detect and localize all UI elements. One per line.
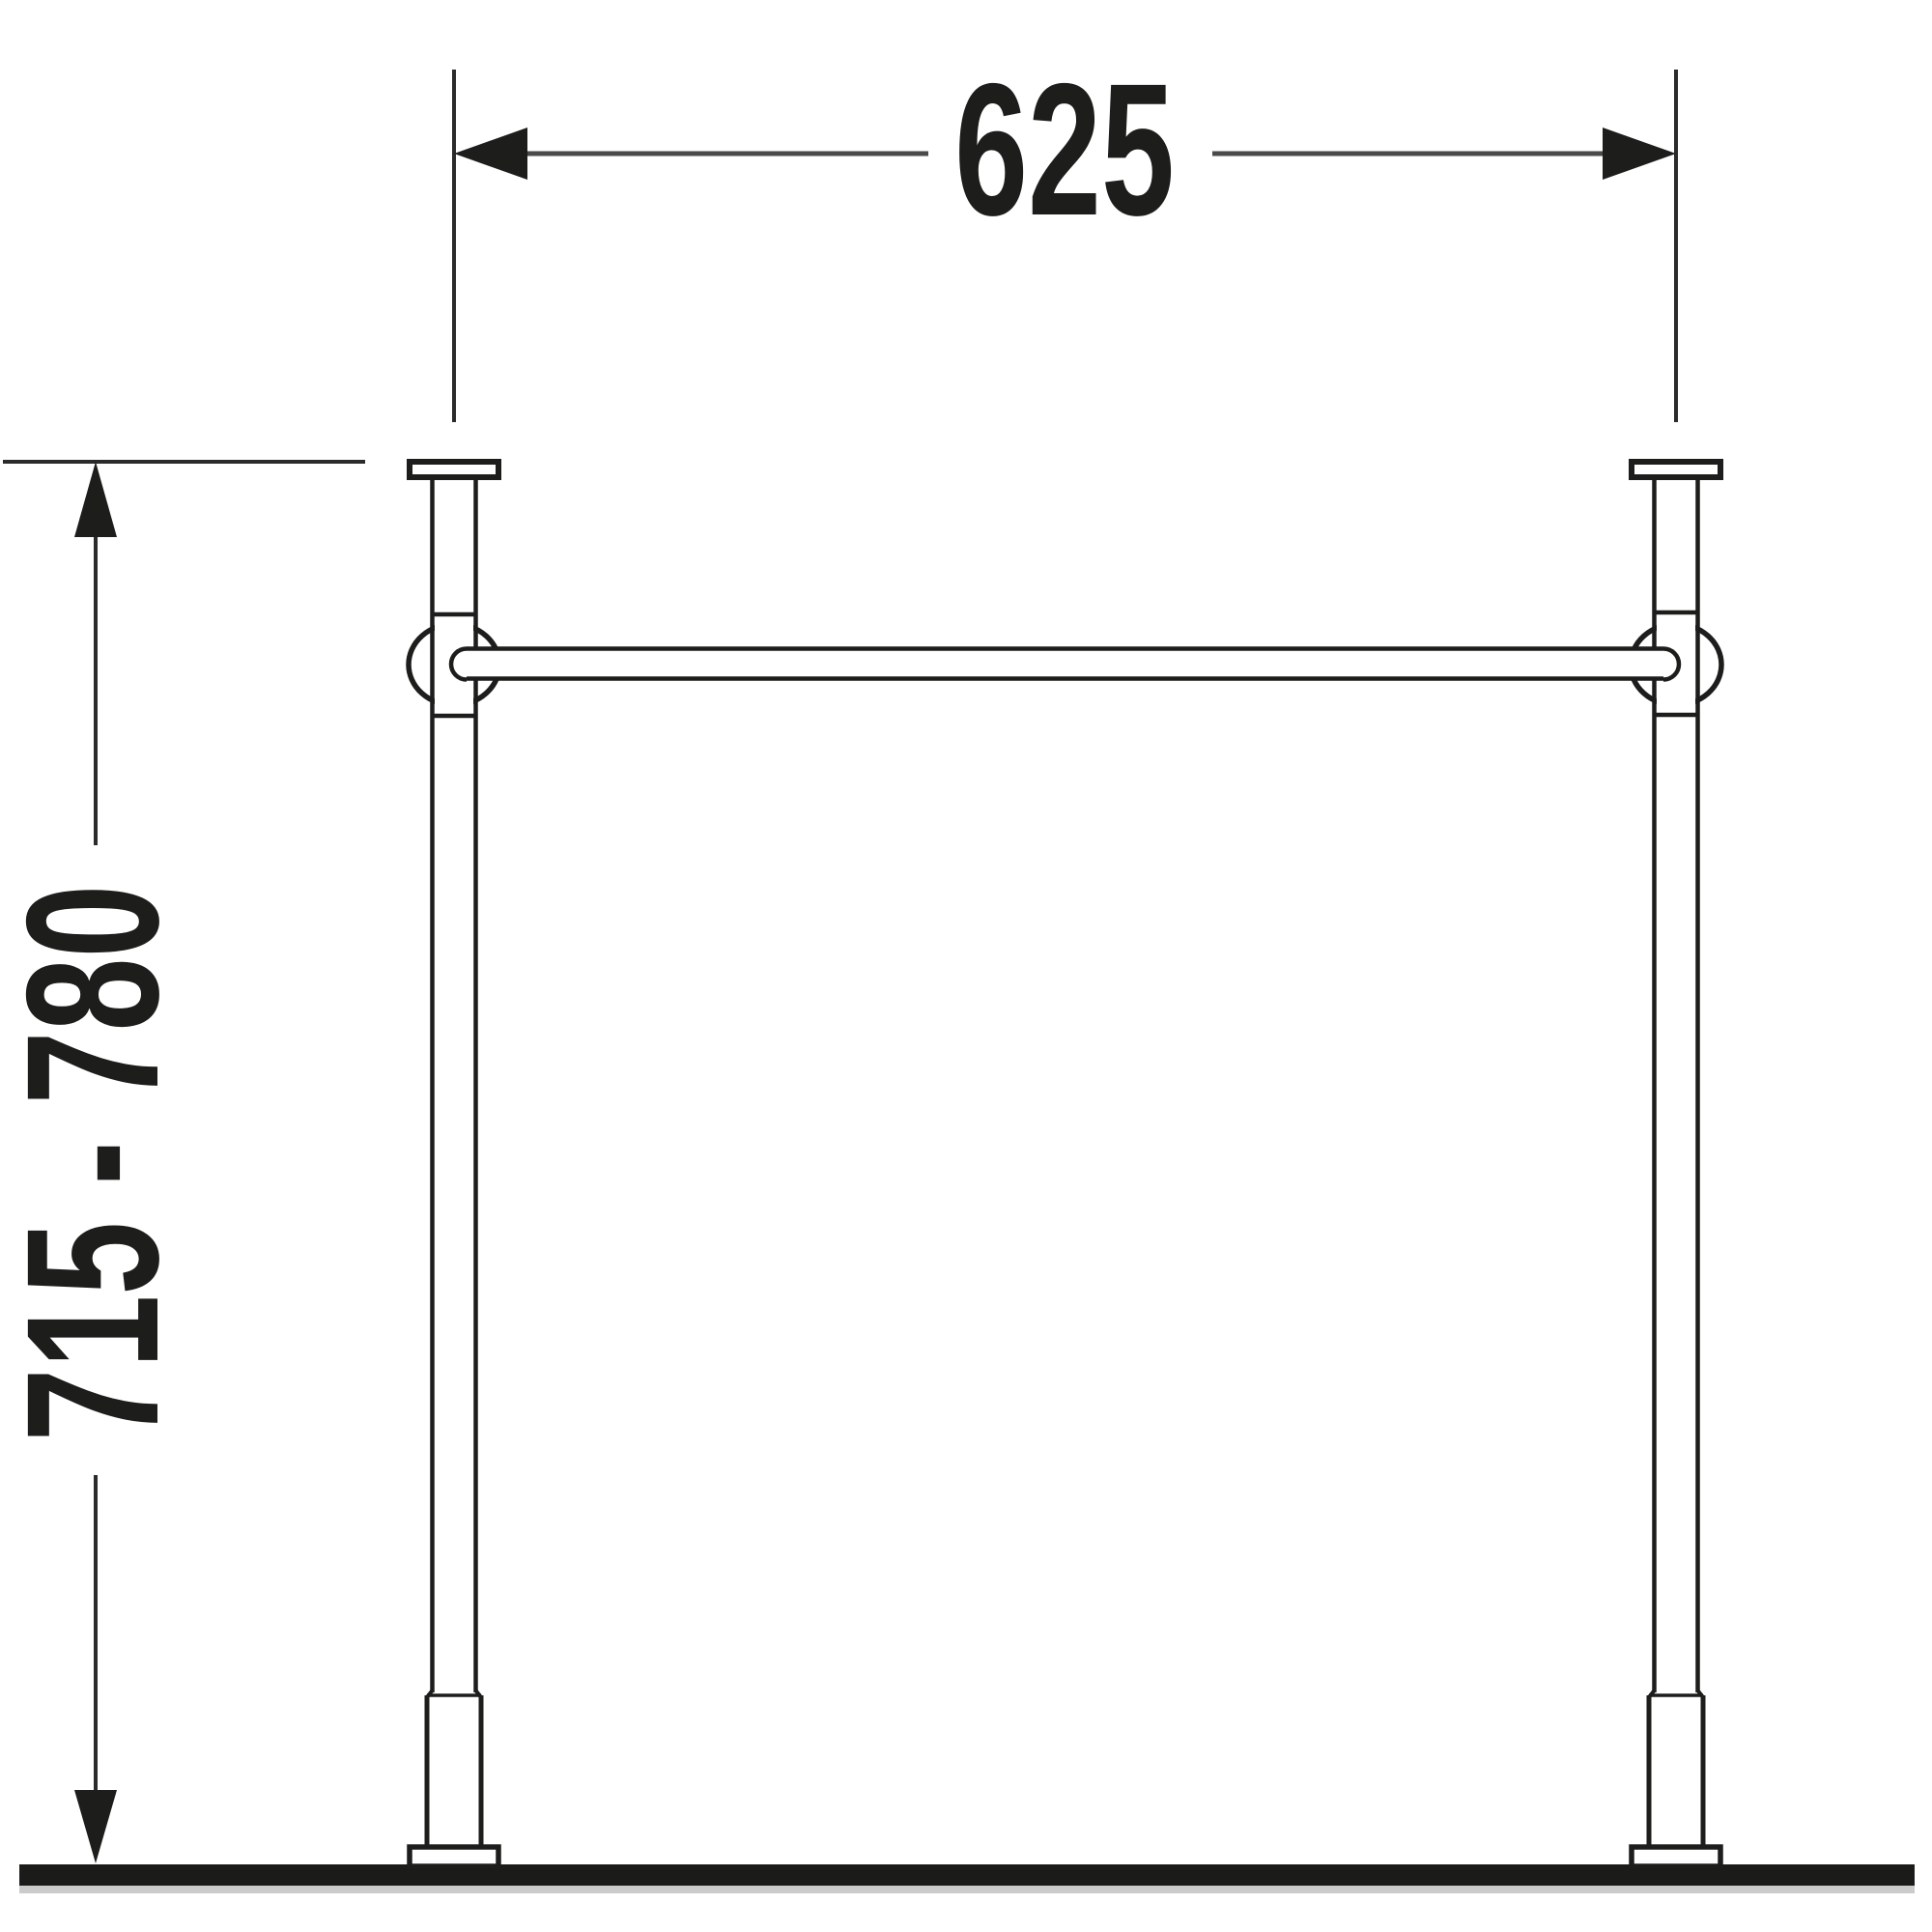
rail-end-cap-left bbox=[451, 649, 467, 680]
arrowhead-left bbox=[454, 128, 527, 180]
console-stand-drawing: 625 715 - 780 bbox=[0, 0, 1932, 1932]
height-dimension: 715 - 780 bbox=[0, 462, 365, 1863]
width-dimension: 625 bbox=[454, 44, 1676, 422]
floor bbox=[19, 1847, 1915, 1893]
rail-tube-fill bbox=[467, 648, 1663, 679]
right-foot-plate bbox=[1632, 1847, 1720, 1866]
width-dimension-label: 625 bbox=[954, 44, 1175, 255]
rail-end-cap-right bbox=[1663, 649, 1679, 680]
arrowhead-up bbox=[74, 462, 117, 537]
towel-rail bbox=[451, 648, 1679, 680]
arrowhead-right bbox=[1603, 128, 1676, 180]
arrowhead-down bbox=[74, 1790, 117, 1863]
wall-flange bbox=[1632, 462, 1720, 477]
technical-drawing-canvas: 625 715 - 780 bbox=[0, 0, 1932, 1932]
wall-flange bbox=[410, 462, 498, 477]
height-dimension-label: 715 - 780 bbox=[0, 885, 198, 1442]
left-foot-plate bbox=[410, 1847, 498, 1866]
